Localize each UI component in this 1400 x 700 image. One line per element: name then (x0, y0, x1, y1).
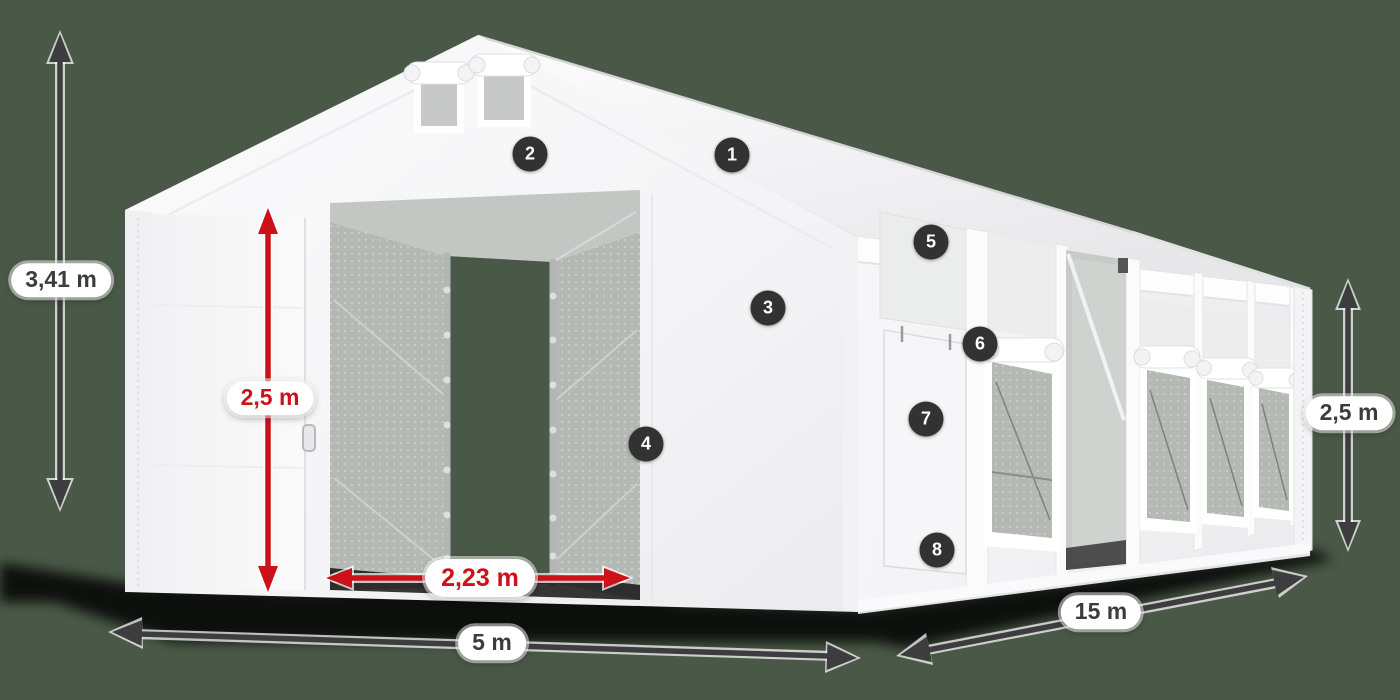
dimension-label-side-height: 2,5 m (1306, 396, 1393, 430)
wall-strap (1126, 258, 1140, 572)
feature-badge-3: 3 (751, 291, 786, 326)
feature-badge-2: 2 (513, 137, 548, 172)
side-panel-flap (988, 234, 1058, 340)
dimension-label-door-height: 2,5 m (227, 381, 314, 415)
vent-roller-cap (524, 57, 540, 73)
feature-badge-1: 1 (715, 138, 750, 173)
side-panel-flap (1253, 320, 1294, 374)
vent-roller-cap (404, 65, 420, 81)
doorway-fitting (1118, 258, 1128, 273)
dimension-label-tent-length: 15 m (1061, 595, 1141, 629)
window-roller-cap (1045, 343, 1063, 361)
vent-roller-cap (469, 57, 485, 73)
feature-badge-8: 8 (920, 533, 955, 568)
open-door-leaf-right-mesh (553, 232, 640, 600)
dimension-label-door-width: 2,23 m (425, 559, 535, 597)
dimension-label-total-height: 3,41 m (11, 263, 111, 297)
dimension-label-tent-width: 5 m (458, 626, 526, 660)
corner-post-front-right (843, 232, 858, 612)
entrance-opening (330, 190, 640, 600)
diagram-page: 1 2 3 4 5 6 7 8 3,41 m 2,5 m 2,23 m 5 m … (0, 0, 1400, 700)
tent-illustration (0, 0, 1400, 700)
vent-window-glass (484, 76, 524, 120)
window-roller-cap (1134, 349, 1150, 365)
feature-badge-5: 5 (914, 225, 949, 260)
window-roller-cap (1197, 361, 1212, 376)
feature-badge-4: 4 (629, 427, 664, 462)
open-door-leaf-left-mesh (330, 222, 447, 590)
feature-badge-6: 6 (963, 327, 998, 362)
window-roller-cap (1249, 371, 1263, 385)
vent-window-glass (421, 84, 457, 126)
door-handle (303, 425, 315, 451)
side-doorway-flap (1072, 258, 1126, 564)
through-view (447, 256, 553, 588)
feature-badge-7: 7 (909, 402, 944, 437)
